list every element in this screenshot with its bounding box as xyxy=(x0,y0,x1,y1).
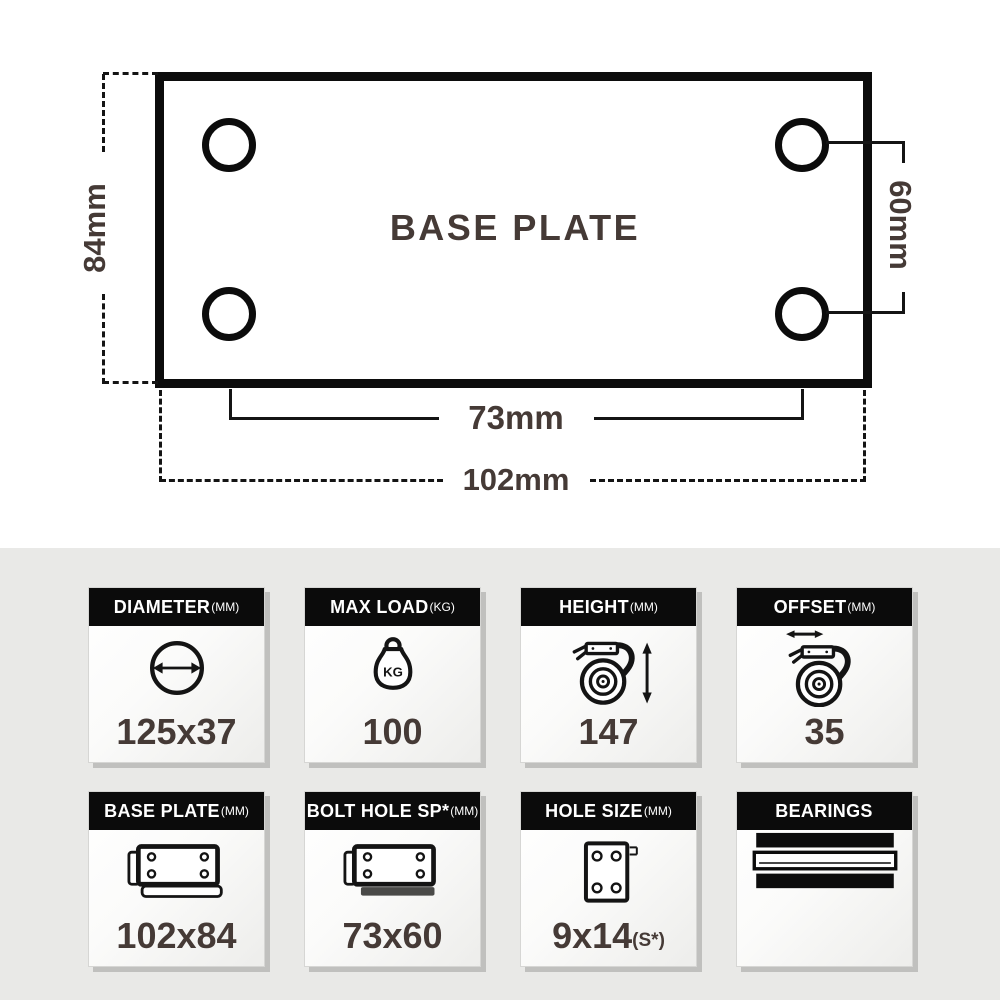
spec-card-height: HEIGHT(MM) xyxy=(520,587,697,763)
dim-73-line-left xyxy=(229,417,439,420)
card-value: 125x37 xyxy=(89,710,264,762)
diameter-icon xyxy=(89,626,264,710)
card-header: BEARINGS xyxy=(737,792,912,830)
dim-60-tick-bottom xyxy=(902,292,905,314)
card-unit: (MM) xyxy=(847,600,875,614)
dim-84-dash-vertical-lower xyxy=(102,294,105,384)
bolt-hole-bottom-left xyxy=(202,287,256,341)
card-value: 9x14(S*) xyxy=(521,914,696,966)
dim-hole-horizontal-label: 73mm xyxy=(441,399,591,437)
card-unit: (MM) xyxy=(644,804,672,818)
max-load-weight-icon: KG xyxy=(305,626,480,710)
dim-hole-vertical-label: 60mm xyxy=(880,165,920,285)
dim-60-tick-top xyxy=(902,141,905,163)
card-header: HOLE SIZE(MM) xyxy=(521,792,696,830)
spec-card-max-load: MAX LOAD(KG) KG 100 xyxy=(304,587,481,763)
card-header: OFFSET(MM) xyxy=(737,588,912,626)
bearings-icon xyxy=(737,830,912,894)
dim-60-leader-top xyxy=(826,141,905,144)
card-header: MAX LOAD(KG) xyxy=(305,588,480,626)
plate-title: BASE PLATE xyxy=(355,207,675,249)
spec-card-bolt-hole-spacing: BOLT HOLE SP*(MM) 73x60 xyxy=(304,791,481,967)
card-value xyxy=(737,894,912,966)
card-header: BOLT HOLE SP*(MM) xyxy=(305,792,480,830)
card-unit: (MM) xyxy=(211,600,239,614)
card-label: MAX LOAD xyxy=(330,597,428,618)
spec-card-bearings: BEARINGS xyxy=(736,791,913,967)
dim-height-label: 84mm xyxy=(75,168,115,288)
dim-102-dash-right xyxy=(863,390,866,482)
bolt-hole-bottom-right xyxy=(775,287,829,341)
dim-73-tick-left xyxy=(229,389,232,420)
bolt-hole-top-right xyxy=(775,118,829,172)
base-plate-icon xyxy=(89,830,264,914)
card-label: DIAMETER xyxy=(114,597,210,618)
card-label: HOLE SIZE xyxy=(545,801,643,822)
card-value: 102x84 xyxy=(89,914,264,966)
spec-card-diameter: DIAMETER(MM) 125x37 xyxy=(88,587,265,763)
card-value: 147 xyxy=(521,710,696,762)
dim-73-line-right xyxy=(594,417,804,420)
base-plate-drawing: BASE PLATE 84mm 60mm 73mm 102mm xyxy=(0,0,1000,548)
card-header: HEIGHT(MM) xyxy=(521,588,696,626)
caster-spec-infographic: BASE PLATE 84mm 60mm 73mm 102mm xyxy=(0,0,1000,1000)
card-label: BOLT HOLE SP* xyxy=(307,801,450,822)
card-unit: (MM) xyxy=(450,804,478,818)
dim-102-dash-left xyxy=(159,390,162,482)
card-unit: (MM) xyxy=(630,600,658,614)
spec-cards-grid: DIAMETER(MM) 125x37 MAX LOAD(K xyxy=(88,587,913,967)
card-label: HEIGHT xyxy=(559,597,629,618)
dim-84-dash-bottom xyxy=(103,381,158,384)
card-label: OFFSET xyxy=(774,597,847,618)
spec-card-base-plate: BASE PLATE(MM) 102x84 xyxy=(88,791,265,967)
caster-height-icon xyxy=(521,626,696,710)
svg-text:KG: KG xyxy=(383,664,403,679)
card-value: 73x60 xyxy=(305,914,480,966)
dim-60-leader-bottom xyxy=(826,311,905,314)
dim-102-line-right xyxy=(590,479,866,482)
dim-84-dash-vertical-upper xyxy=(102,74,105,152)
card-header: DIAMETER(MM) xyxy=(89,588,264,626)
card-label: BEARINGS xyxy=(775,801,872,822)
card-header: BASE PLATE(MM) xyxy=(89,792,264,830)
card-label: BASE PLATE xyxy=(104,801,220,822)
bolt-hole-spacing-icon xyxy=(305,830,480,914)
card-unit: (MM) xyxy=(221,804,249,818)
dim-102-line-left xyxy=(160,479,443,482)
spec-card-offset: OFFSET(MM) xyxy=(736,587,913,763)
hole-size-icon xyxy=(521,830,696,914)
card-value: 100 xyxy=(305,710,480,762)
spec-card-hole-size: HOLE SIZE(MM) 9x14(S*) xyxy=(520,791,697,967)
card-unit: (KG) xyxy=(430,600,455,614)
caster-offset-icon xyxy=(737,626,912,710)
dim-width-label: 102mm xyxy=(441,462,591,498)
dim-84-dash-top xyxy=(103,72,158,75)
bolt-hole-top-left xyxy=(202,118,256,172)
dim-73-tick-right xyxy=(801,389,804,420)
card-value: 35 xyxy=(737,710,912,762)
spec-cards-section: DIAMETER(MM) 125x37 MAX LOAD(K xyxy=(0,548,1000,1000)
